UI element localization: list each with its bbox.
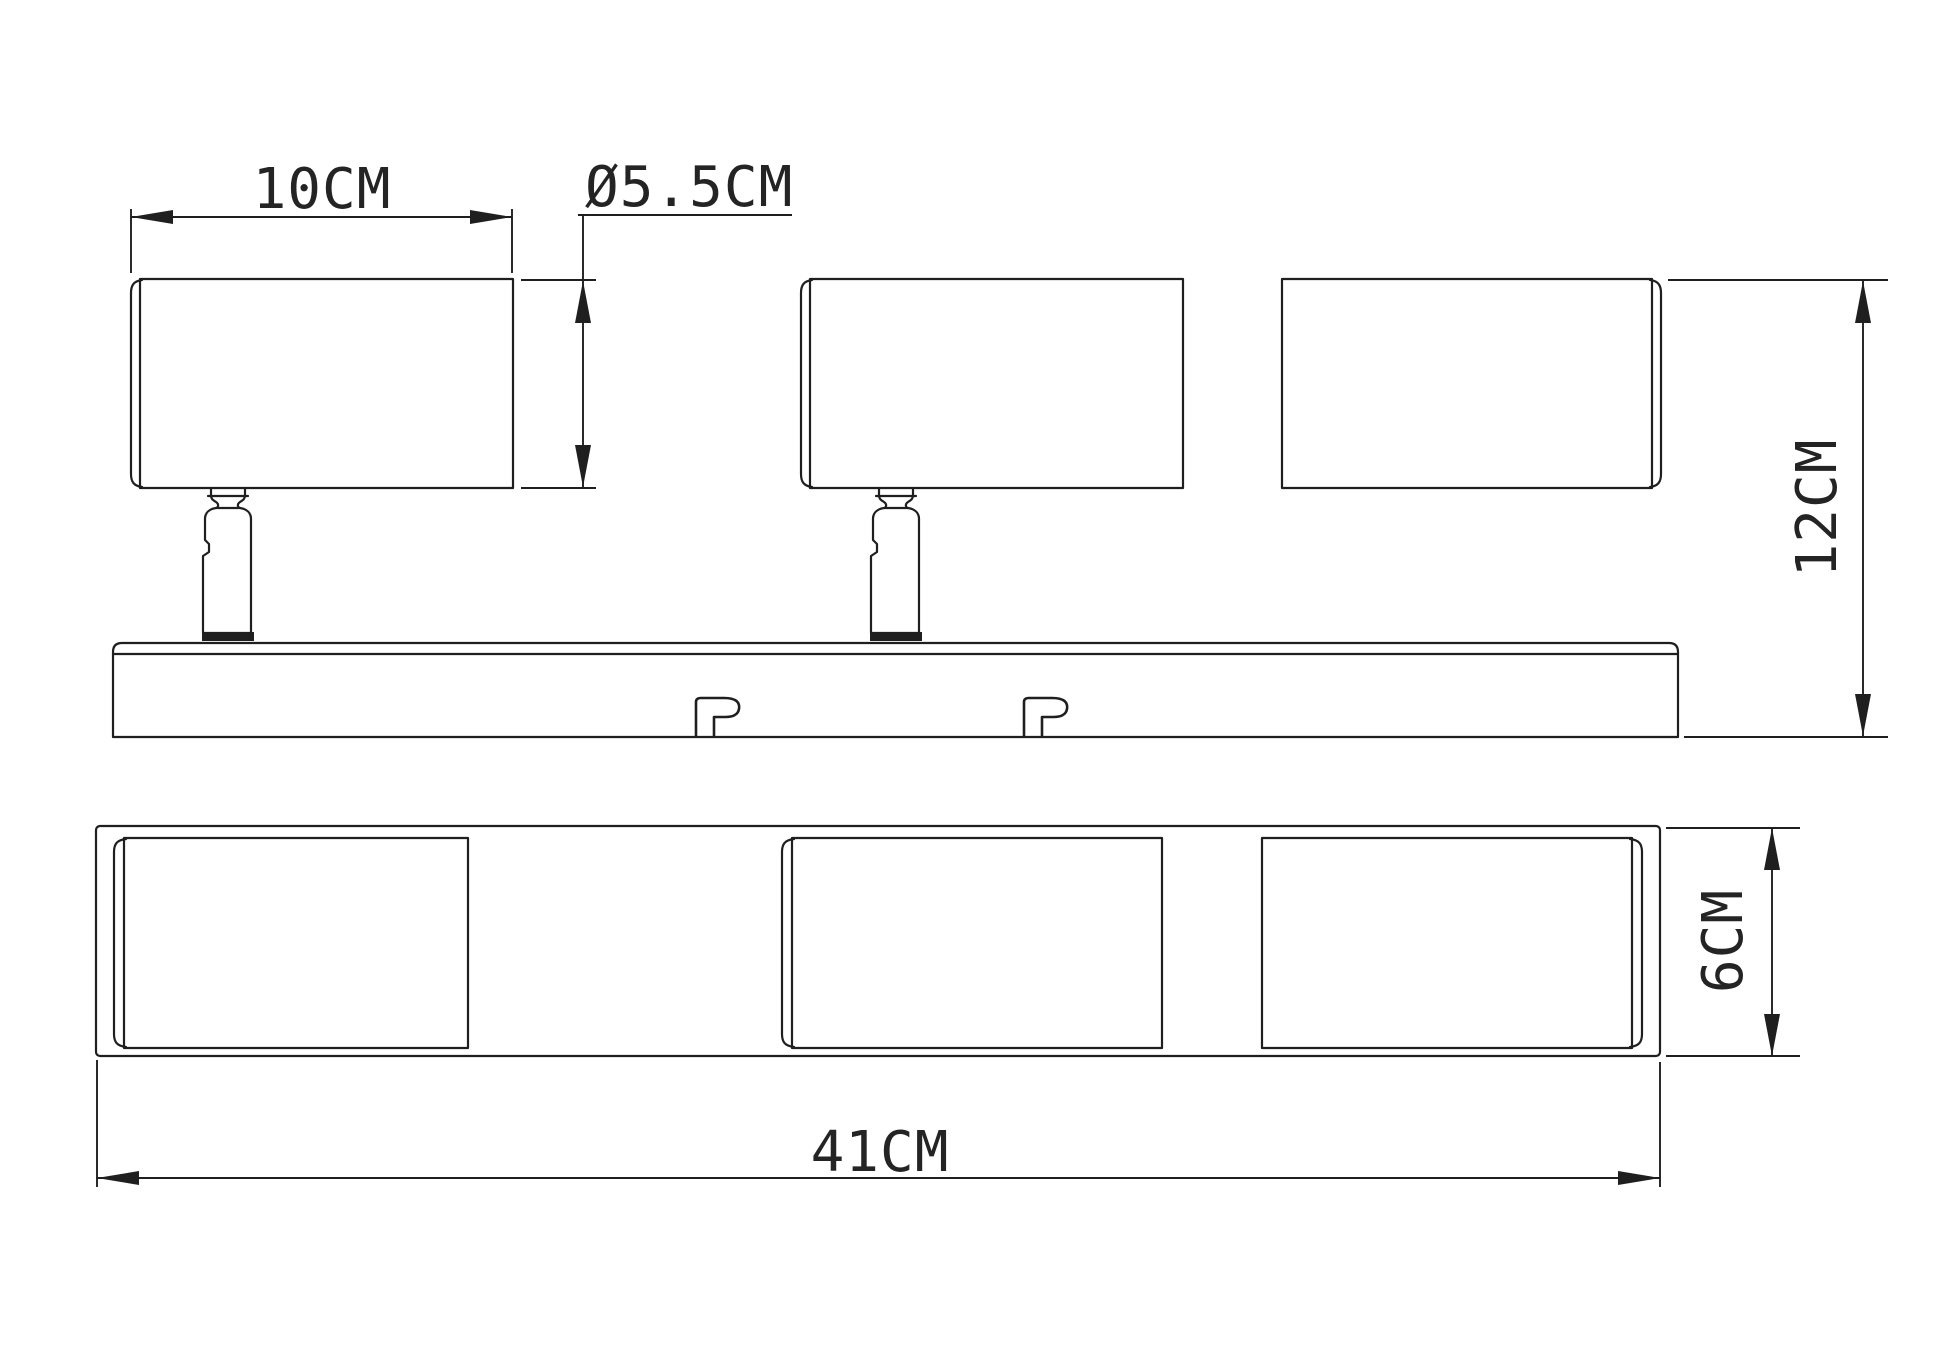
arrowhead-down [1764,1014,1780,1056]
stem-1 [202,488,254,641]
mounting-bar-front [113,643,1678,737]
lamp-head-3 [1282,279,1661,488]
dimension-label-head-width: 10CM [253,157,392,222]
lamp-head-plan-body [124,838,468,1048]
technical-drawing-page: 10CM Ø5.5CM 12CM [0,0,1940,1371]
lamp-head-plan-body [792,838,1162,1048]
arrowhead-up [1764,828,1780,870]
dimension-total-height: 12CM [1668,280,1888,737]
arrowhead-right [470,210,512,224]
lamp-head-plan-body [1262,838,1632,1048]
arrowhead-up [575,281,591,323]
dimension-label-total-length: 41CM [811,1120,950,1185]
lamp-head-2 [801,279,1183,488]
spotlight-fixture-drawing: 10CM Ø5.5CM 12CM [0,0,1940,1371]
lamp-head-plan-1 [114,838,468,1048]
plan-view: 6CM 41CM [96,826,1800,1187]
dimension-head-width: 10CM [131,157,512,273]
stem-2 [870,488,922,641]
arrowhead-right [1618,1171,1660,1185]
lamp-head-body [810,279,1183,488]
arrowhead-down [1855,694,1871,736]
lamp-head-1 [131,279,513,488]
lamp-head-body [1282,279,1652,488]
dimension-total-length: 41CM [97,1060,1660,1187]
arrowhead-up [1855,281,1871,323]
mounting-bar-outline [113,643,1678,737]
dimension-label-head-diameter: Ø5.5CM [585,155,793,220]
arrowhead-down [575,445,591,487]
lamp-head-plan-2 [782,838,1162,1048]
dimension-label-total-height: 12CM [1785,439,1850,578]
dimension-label-bar-depth: 6CM [1691,889,1756,993]
lamp-head-body [140,279,513,488]
lamp-head-plan-3 [1262,838,1642,1048]
arrowhead-left [97,1171,139,1185]
dimension-head-diameter: Ø5.5CM [521,155,793,488]
front-view: 10CM Ø5.5CM 12CM [113,155,1940,737]
arrowhead-left [131,210,173,224]
dimension-bar-depth: 6CM [1666,828,1800,1056]
